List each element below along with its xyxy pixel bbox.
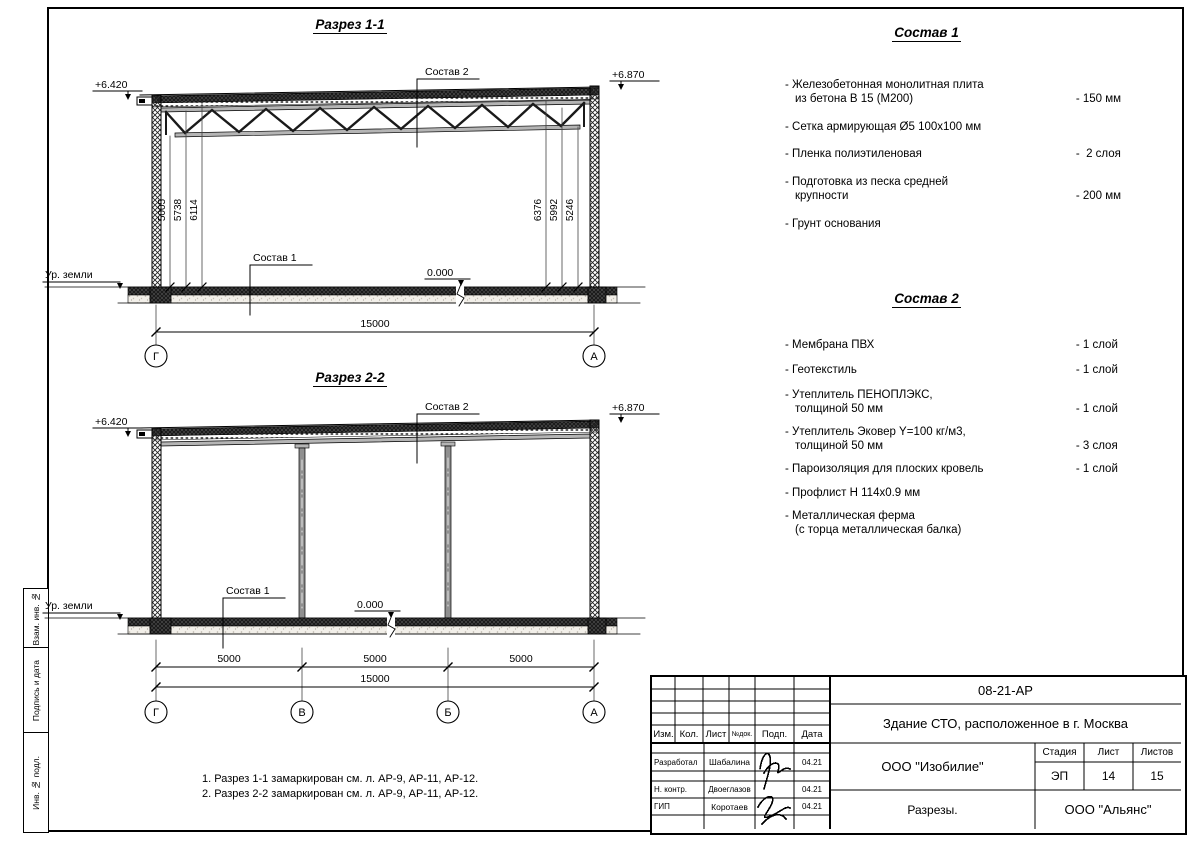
col-kol: Кол. bbox=[675, 725, 703, 743]
svg-text:0.000: 0.000 bbox=[357, 599, 383, 611]
svg-text:Ур. земли: Ур. земли bbox=[45, 600, 93, 612]
drawing-title: Разрезы. bbox=[830, 790, 1035, 829]
composition2-title: Состав 2 bbox=[785, 290, 1068, 308]
stage-label: Стадия bbox=[1035, 743, 1084, 762]
col-list: Лист bbox=[703, 725, 729, 743]
row-name: Коротаев bbox=[704, 798, 755, 815]
svg-text:5246: 5246 bbox=[565, 198, 576, 221]
sheets-label: Листов bbox=[1133, 743, 1181, 762]
svg-text:5000: 5000 bbox=[363, 653, 387, 665]
svg-text:+6.420: +6.420 bbox=[95, 416, 128, 428]
row-date: 04.21 bbox=[794, 781, 830, 798]
client-org: ООО "Альянс" bbox=[1035, 790, 1181, 829]
list-item: - Пароизоляция для плоских кровель - 1 с… bbox=[785, 462, 1185, 476]
sheets-value: 15 bbox=[1133, 762, 1181, 790]
svg-text:+6.870: +6.870 bbox=[612, 69, 645, 81]
svg-text:Состав 2: Состав 2 bbox=[425, 66, 469, 78]
section2-drawing: +6.420 +6.870 Состав 2 Состав 1 bbox=[43, 401, 659, 723]
doc-number: 08-21-АР bbox=[830, 677, 1181, 704]
drawing-sheet: Взам. инв. № Подпись и дата Инв. № подл.… bbox=[0, 0, 1191, 842]
svg-text:+6.420: +6.420 bbox=[95, 79, 128, 91]
list-item: - Грунт основания bbox=[785, 217, 1185, 231]
svg-text:Г: Г bbox=[153, 707, 159, 719]
svg-text:Состав 2: Состав 2 bbox=[425, 401, 469, 413]
section1-bottom-dim: 15000 bbox=[152, 305, 598, 345]
row-role: ГИП bbox=[654, 798, 703, 815]
project-title: Здание СТО, расположенное в г. Москва bbox=[830, 704, 1181, 743]
list-item: - Железобетонная монолитная плита из бет… bbox=[785, 78, 1185, 106]
col-data: Дата bbox=[794, 725, 830, 743]
svg-text:Состав 1: Состав 1 bbox=[253, 252, 297, 264]
section1-zero-level: 0.000 bbox=[425, 267, 470, 286]
list-item: - Пленка полиэтиленовая - 2 слоя bbox=[785, 147, 1185, 161]
row-date: 04.21 bbox=[794, 753, 830, 771]
col-podp: Подп. bbox=[755, 725, 794, 743]
section2-elevation-right: +6.870 bbox=[610, 402, 659, 423]
composition1-list: Состав 1 - Железобетонная монолитная пли… bbox=[785, 24, 1185, 231]
note-line: 2. Разрез 2-2 замаркирован см. л. АР-9, … bbox=[202, 787, 478, 802]
svg-text:5000: 5000 bbox=[509, 653, 533, 665]
svg-text:6376: 6376 bbox=[533, 198, 544, 221]
col-izm: Изм. bbox=[652, 725, 675, 743]
signature bbox=[758, 753, 790, 824]
row-role: Разработал bbox=[654, 753, 703, 771]
svg-text:6114: 6114 bbox=[189, 199, 200, 221]
svg-text:15000: 15000 bbox=[360, 673, 389, 685]
section1-title: Разрез 1-1 bbox=[290, 16, 410, 34]
break-symbol bbox=[387, 616, 395, 636]
section1-floor bbox=[45, 284, 645, 306]
notes: 1. Разрез 1-1 замаркирован см. л. АР-9, … bbox=[202, 772, 478, 802]
section2-axes: Г В Б А bbox=[145, 701, 605, 723]
break-symbol bbox=[456, 285, 464, 305]
svg-text:Б: Б bbox=[444, 707, 451, 719]
section2-callout-floor: Состав 1 bbox=[223, 585, 285, 648]
section2-title: Разрез 2-2 bbox=[290, 369, 410, 387]
svg-text:Г: Г bbox=[153, 351, 159, 363]
row-name: Двоеглазов bbox=[704, 781, 755, 798]
svg-text:Ур. земли: Ур. земли bbox=[45, 269, 93, 281]
section2-columns bbox=[295, 442, 455, 618]
section1-elevation-right: +6.870 bbox=[610, 69, 659, 90]
list-item: - Утеплитель Эковер Y=100 кг/м3, толщино… bbox=[785, 425, 1185, 453]
section2-roof bbox=[137, 420, 599, 446]
section2-zero-level: 0.000 bbox=[355, 599, 400, 618]
row-role: Н. контр. bbox=[654, 781, 703, 798]
section2-ground-label: Ур. земли bbox=[43, 600, 123, 620]
list-item: - Металлическая ферма (с торца металличе… bbox=[785, 509, 1185, 537]
section1-axes: Г А bbox=[145, 345, 605, 367]
list-item: - Геотекстиль - 1 слой bbox=[785, 363, 1185, 377]
row-name: Шабалина bbox=[704, 753, 755, 771]
svg-text:5005: 5005 bbox=[157, 198, 168, 221]
title-block: 08-21-АР Здание СТО, расположенное в г. … bbox=[650, 675, 1187, 835]
section1-vertical-dim-labels: 5005 5738 6114 6376 5992 5246 bbox=[157, 198, 576, 221]
svg-text:5000: 5000 bbox=[217, 653, 241, 665]
list-item: - Сетка армирующая Ø5 100x100 мм bbox=[785, 120, 1185, 134]
section1-elevation-left: +6.420 bbox=[93, 79, 142, 100]
svg-text:В: В bbox=[298, 707, 305, 719]
svg-text:Состав 1: Состав 1 bbox=[226, 585, 270, 597]
sheet-value: 14 bbox=[1084, 762, 1133, 790]
stage-value: ЭП bbox=[1035, 762, 1084, 790]
svg-text:5992: 5992 bbox=[549, 198, 560, 221]
section2-bottom-dims: 5000 5000 5000 15000 bbox=[152, 640, 598, 701]
section1-callout-floor: Состав 1 bbox=[250, 252, 312, 315]
svg-text:+6.870: +6.870 bbox=[612, 402, 645, 414]
designer-org: ООО "Изобилие" bbox=[830, 743, 1035, 790]
svg-text:0.000: 0.000 bbox=[427, 267, 453, 279]
list-item: - Мембрана ПВХ - 1 слой bbox=[785, 338, 1185, 352]
list-item: - Утеплитель ПЕНОПЛЭКС, толщиной 50 мм -… bbox=[785, 388, 1185, 416]
col-ndok: №док. bbox=[729, 725, 755, 743]
section2-elevation-left: +6.420 bbox=[93, 416, 142, 437]
svg-text:А: А bbox=[590, 707, 598, 719]
list-item: - Подготовка из песка средней крупности … bbox=[785, 175, 1185, 203]
svg-text:А: А bbox=[590, 351, 598, 363]
section1-drawing: +6.420 +6.870 Состав 2 Состав 1 bbox=[43, 66, 659, 367]
svg-text:5738: 5738 bbox=[173, 198, 184, 221]
note-line: 1. Разрез 1-1 замаркирован см. л. АР-9, … bbox=[202, 772, 478, 787]
sheet-label: Лист bbox=[1084, 743, 1133, 762]
row-date: 04.21 bbox=[794, 798, 830, 815]
composition1-title: Состав 1 bbox=[785, 24, 1068, 42]
list-item: - Профлист Н 114x0.9 мм bbox=[785, 486, 1185, 500]
section2-walls bbox=[152, 420, 599, 618]
section1-ground-label: Ур. земли bbox=[43, 269, 123, 289]
section2-floor bbox=[45, 615, 645, 637]
composition2-list: Состав 2 - Мембрана ПВХ - 1 слой - Геоте… bbox=[785, 290, 1185, 537]
svg-text:15000: 15000 bbox=[360, 318, 389, 330]
